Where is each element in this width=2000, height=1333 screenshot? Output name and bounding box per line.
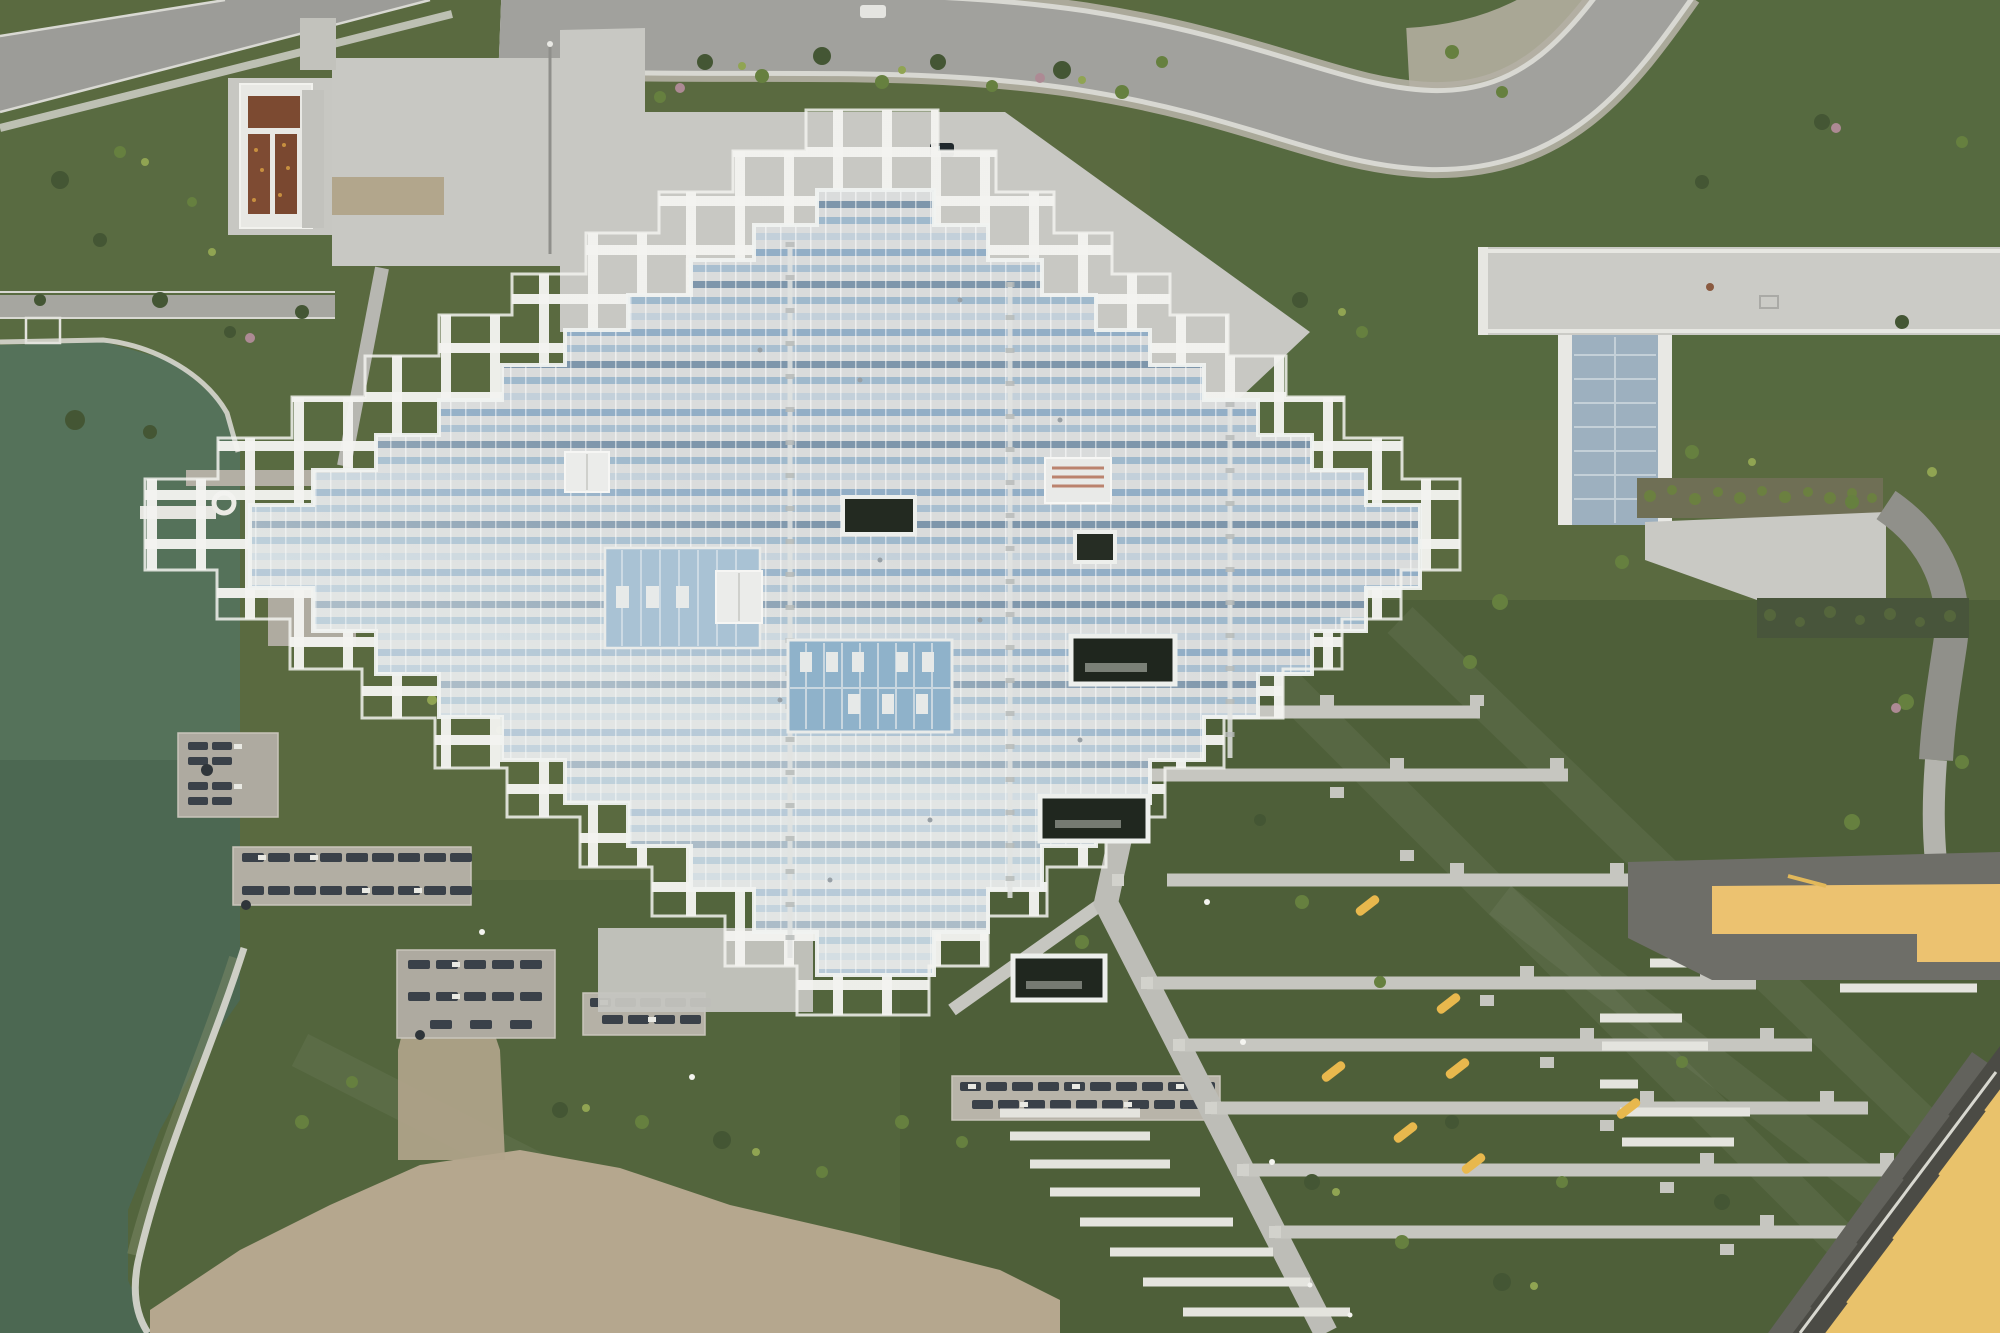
- roof-vents: [1078, 738, 1083, 743]
- skylight-central-hatches: [800, 652, 812, 672]
- roof-vents: [828, 878, 833, 883]
- skylight-central-hatches: [896, 652, 908, 672]
- courtyard-e-path: [1026, 981, 1082, 989]
- roof-vents: [958, 298, 963, 303]
- aerial-photo-stage: [0, 0, 2000, 1333]
- courtyard-b: [1075, 532, 1115, 562]
- roof-vents: [1058, 418, 1063, 423]
- skylight-central-hatches: [882, 694, 894, 714]
- pergola-edge: [145, 110, 1460, 1015]
- roof-vents: [858, 378, 863, 383]
- courtyard-d: [1040, 796, 1148, 841]
- skylight-central-hatches: [852, 652, 864, 672]
- skylight-west-hatches: [676, 586, 689, 608]
- skylight-central-hatches: [916, 694, 928, 714]
- roof-vents: [978, 618, 983, 623]
- skylight-west-hatches: [646, 586, 659, 608]
- roof-edge: [250, 190, 1420, 975]
- courtyard-e: [1013, 956, 1105, 1000]
- roof-vents: [878, 558, 883, 563]
- roof-unit-c: [1045, 458, 1111, 503]
- roof-detail-layer: [0, 0, 2000, 1333]
- skylight-central-hatches: [826, 652, 838, 672]
- roof-vents: [758, 348, 763, 353]
- skylight-central-hatches: [848, 694, 860, 714]
- skylight-central-hatches: [922, 652, 934, 672]
- skylight-west-hatches: [616, 586, 629, 608]
- courtyard-a: [843, 497, 915, 534]
- courtyard-d-path: [1055, 820, 1121, 828]
- courtyard-c-path: [1085, 663, 1147, 672]
- roof-vents: [928, 818, 933, 823]
- roof-vents: [778, 698, 783, 703]
- courtyard-c: [1071, 636, 1175, 684]
